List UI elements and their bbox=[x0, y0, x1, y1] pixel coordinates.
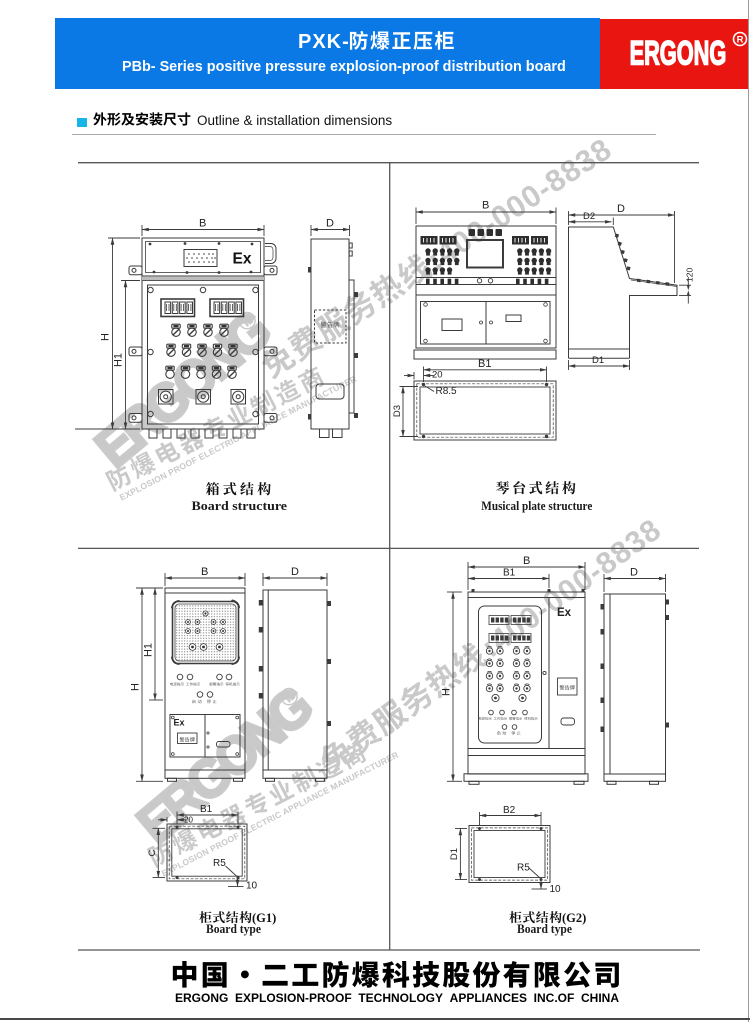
svg-text:Board structure: Board structure bbox=[192, 498, 288, 513]
svg-text:D3: D3 bbox=[392, 405, 403, 417]
svg-text:D1: D1 bbox=[592, 355, 604, 366]
svg-text:Ex: Ex bbox=[557, 607, 572, 619]
svg-text:D: D bbox=[630, 567, 638, 579]
svg-text:Musical plate structure: Musical plate structure bbox=[481, 498, 592, 513]
svg-text:120: 120 bbox=[685, 268, 695, 282]
svg-text:H: H bbox=[100, 333, 112, 341]
svg-text::400-000-8838: :400-000-8838 bbox=[475, 512, 668, 664]
svg-text:H: H bbox=[130, 683, 142, 691]
svg-text:20: 20 bbox=[184, 816, 193, 825]
svg-text:Board type: Board type bbox=[206, 921, 261, 936]
svg-text:H1: H1 bbox=[113, 353, 125, 367]
svg-text:20: 20 bbox=[432, 370, 443, 381]
svg-text:H: H bbox=[441, 688, 453, 696]
svg-text:B1: B1 bbox=[200, 804, 213, 815]
svg-text:C: C bbox=[147, 849, 158, 856]
svg-text:B1: B1 bbox=[478, 358, 491, 370]
svg-text:Ex: Ex bbox=[174, 718, 185, 728]
svg-text:D1: D1 bbox=[449, 848, 460, 860]
svg-text:H1: H1 bbox=[143, 643, 155, 657]
svg-text:D: D bbox=[617, 203, 625, 215]
svg-text:10: 10 bbox=[246, 881, 258, 892]
svg-text:Board type: Board type bbox=[517, 921, 572, 936]
svg-text:B: B bbox=[201, 566, 208, 578]
svg-text:10: 10 bbox=[550, 884, 562, 895]
svg-text:D: D bbox=[291, 566, 299, 578]
svg-text:R8.5: R8.5 bbox=[436, 386, 458, 397]
svg-text:Ex: Ex bbox=[233, 251, 252, 268]
svg-text:B: B bbox=[482, 200, 489, 212]
svg-text:B: B bbox=[523, 555, 530, 567]
svg-text:D2: D2 bbox=[583, 211, 595, 222]
svg-text:B: B bbox=[199, 218, 206, 230]
svg-text:B1: B1 bbox=[503, 568, 516, 579]
svg-text:D: D bbox=[326, 218, 334, 230]
svg-text:R5: R5 bbox=[213, 858, 226, 869]
svg-text:B2: B2 bbox=[503, 805, 516, 816]
svg-text:R5: R5 bbox=[517, 863, 530, 874]
